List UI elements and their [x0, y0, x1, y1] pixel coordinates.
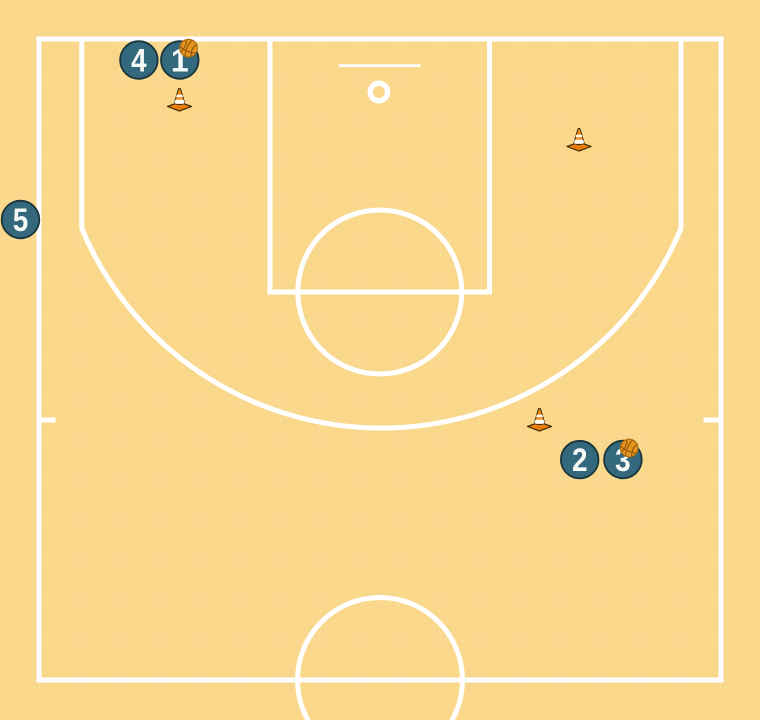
svg-text:4: 4: [131, 42, 147, 78]
svg-text:5: 5: [13, 202, 29, 238]
svg-text:2: 2: [572, 442, 588, 478]
